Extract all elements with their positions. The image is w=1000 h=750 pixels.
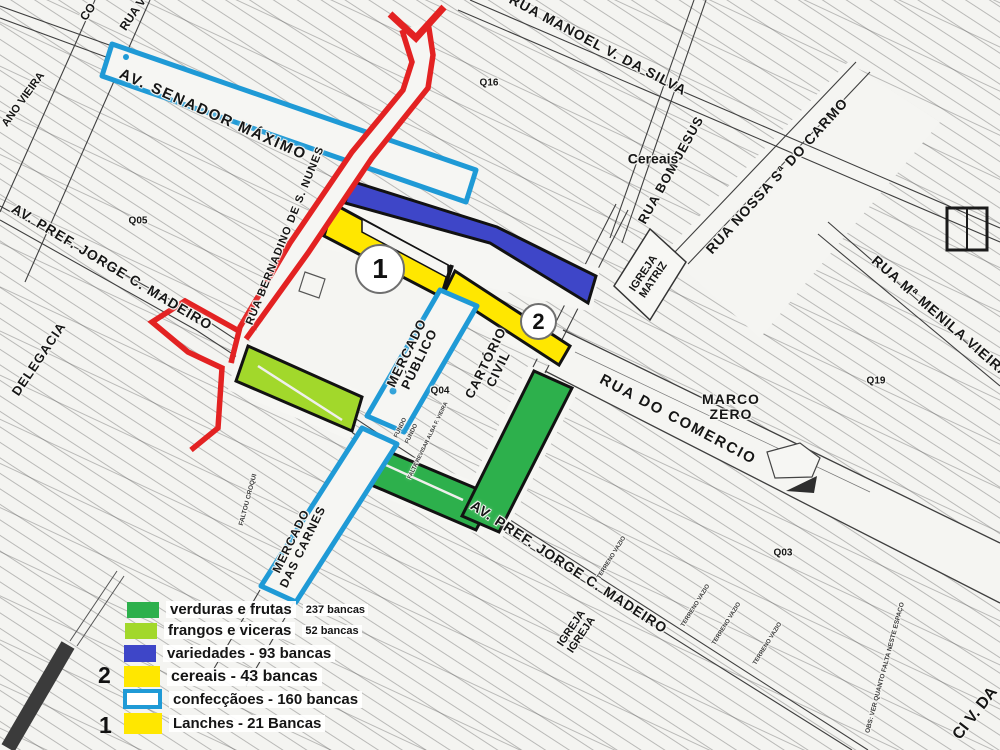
legend-label: verduras e frutas <box>166 601 296 618</box>
legend-swatch-confeccoes <box>123 689 162 709</box>
block-label-q03: Q03 <box>774 549 793 560</box>
marco-zero-line2: ZERO <box>702 407 760 422</box>
legend-row-verduras: verduras e frutas 237 bancas <box>127 601 368 618</box>
legend-row-cereais: cereais - 43 bancas <box>124 666 322 687</box>
legend-count: 52 bancas <box>302 625 361 637</box>
block-label-q16: Q16 <box>480 79 499 90</box>
legend-label: cereais - 43 bancas <box>167 668 322 686</box>
legend-label: confecçãoes - 160 bancas <box>169 691 362 708</box>
legend-marker-1: 1 <box>99 712 112 739</box>
legend-count: 237 bancas <box>303 604 368 616</box>
legend-swatch-lanches <box>124 713 162 734</box>
legend-row-frangos: frangos e viceras 52 bancas <box>125 622 362 639</box>
marco-zero-line1: MARCO <box>702 392 760 407</box>
zone-marker-circle-1: 1 <box>355 244 405 294</box>
legend-label: Lanches - 21 Bancas <box>169 715 325 732</box>
place-label-marco-zero: MARCO ZERO <box>702 392 760 422</box>
block-label-q19: Q19 <box>867 377 886 388</box>
zone-marker-circle-2: 2 <box>520 303 557 340</box>
place-label-cereais: Cereais <box>628 152 679 167</box>
legend-label: frangos e viceras <box>164 622 295 639</box>
block-label-q05: Q05 <box>129 217 148 228</box>
legend-row-lanches: Lanches - 21 Bancas <box>124 713 325 734</box>
legend-swatch-variedades <box>124 645 156 662</box>
block-label-q04: Q04 <box>431 387 450 398</box>
band-dot <box>123 54 129 60</box>
legend-label: variedades - 93 bancas <box>163 645 335 662</box>
legend-row-variedades: variedades - 93 bancas <box>124 645 335 662</box>
legend-swatch-cereais <box>124 666 160 687</box>
map-canvas: AV. SENADOR MÁXIMO RUA MANOEL V. DA SILV… <box>0 0 1000 750</box>
legend-marker-2: 2 <box>98 662 111 689</box>
legend-swatch-verduras <box>127 602 159 618</box>
legend-row-confeccoes: confecçãoes - 160 bancas <box>123 689 362 709</box>
legend-swatch-frangos <box>125 623 157 639</box>
